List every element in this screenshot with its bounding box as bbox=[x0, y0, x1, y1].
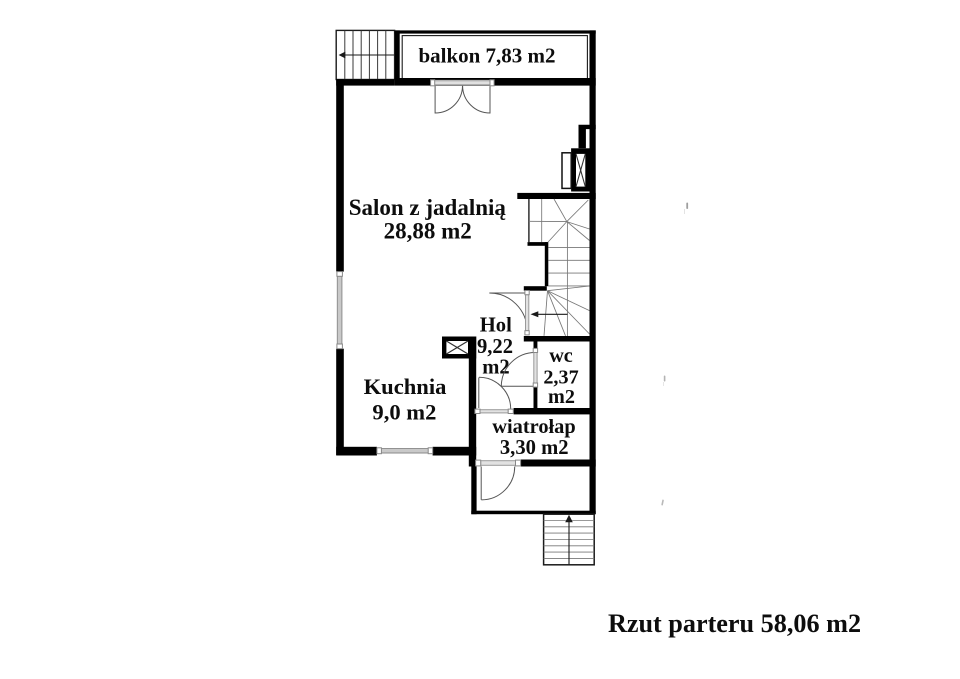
svg-text:Salon z jadalnią: Salon z jadalnią bbox=[349, 195, 507, 220]
svg-text:2,37: 2,37 bbox=[543, 366, 578, 388]
svg-text:m2: m2 bbox=[482, 357, 509, 379]
svg-text:wiatrołap: wiatrołap bbox=[492, 416, 575, 438]
svg-text:Rzut parteru 58,06 m2: Rzut parteru 58,06 m2 bbox=[608, 609, 861, 638]
svg-text:m2: m2 bbox=[548, 386, 575, 408]
svg-text:Hol: Hol bbox=[480, 315, 512, 337]
svg-text:3,30 m2: 3,30 m2 bbox=[500, 437, 569, 459]
svg-text:Kuchnia: Kuchnia bbox=[364, 374, 447, 399]
svg-text:28,88 m2: 28,88 m2 bbox=[384, 219, 472, 244]
svg-text:balkon 7,83 m2: balkon 7,83 m2 bbox=[418, 43, 555, 67]
svg-text:wc: wc bbox=[549, 345, 573, 367]
svg-text:9,22: 9,22 bbox=[477, 336, 513, 358]
svg-text:9,0 m2: 9,0 m2 bbox=[372, 399, 436, 424]
